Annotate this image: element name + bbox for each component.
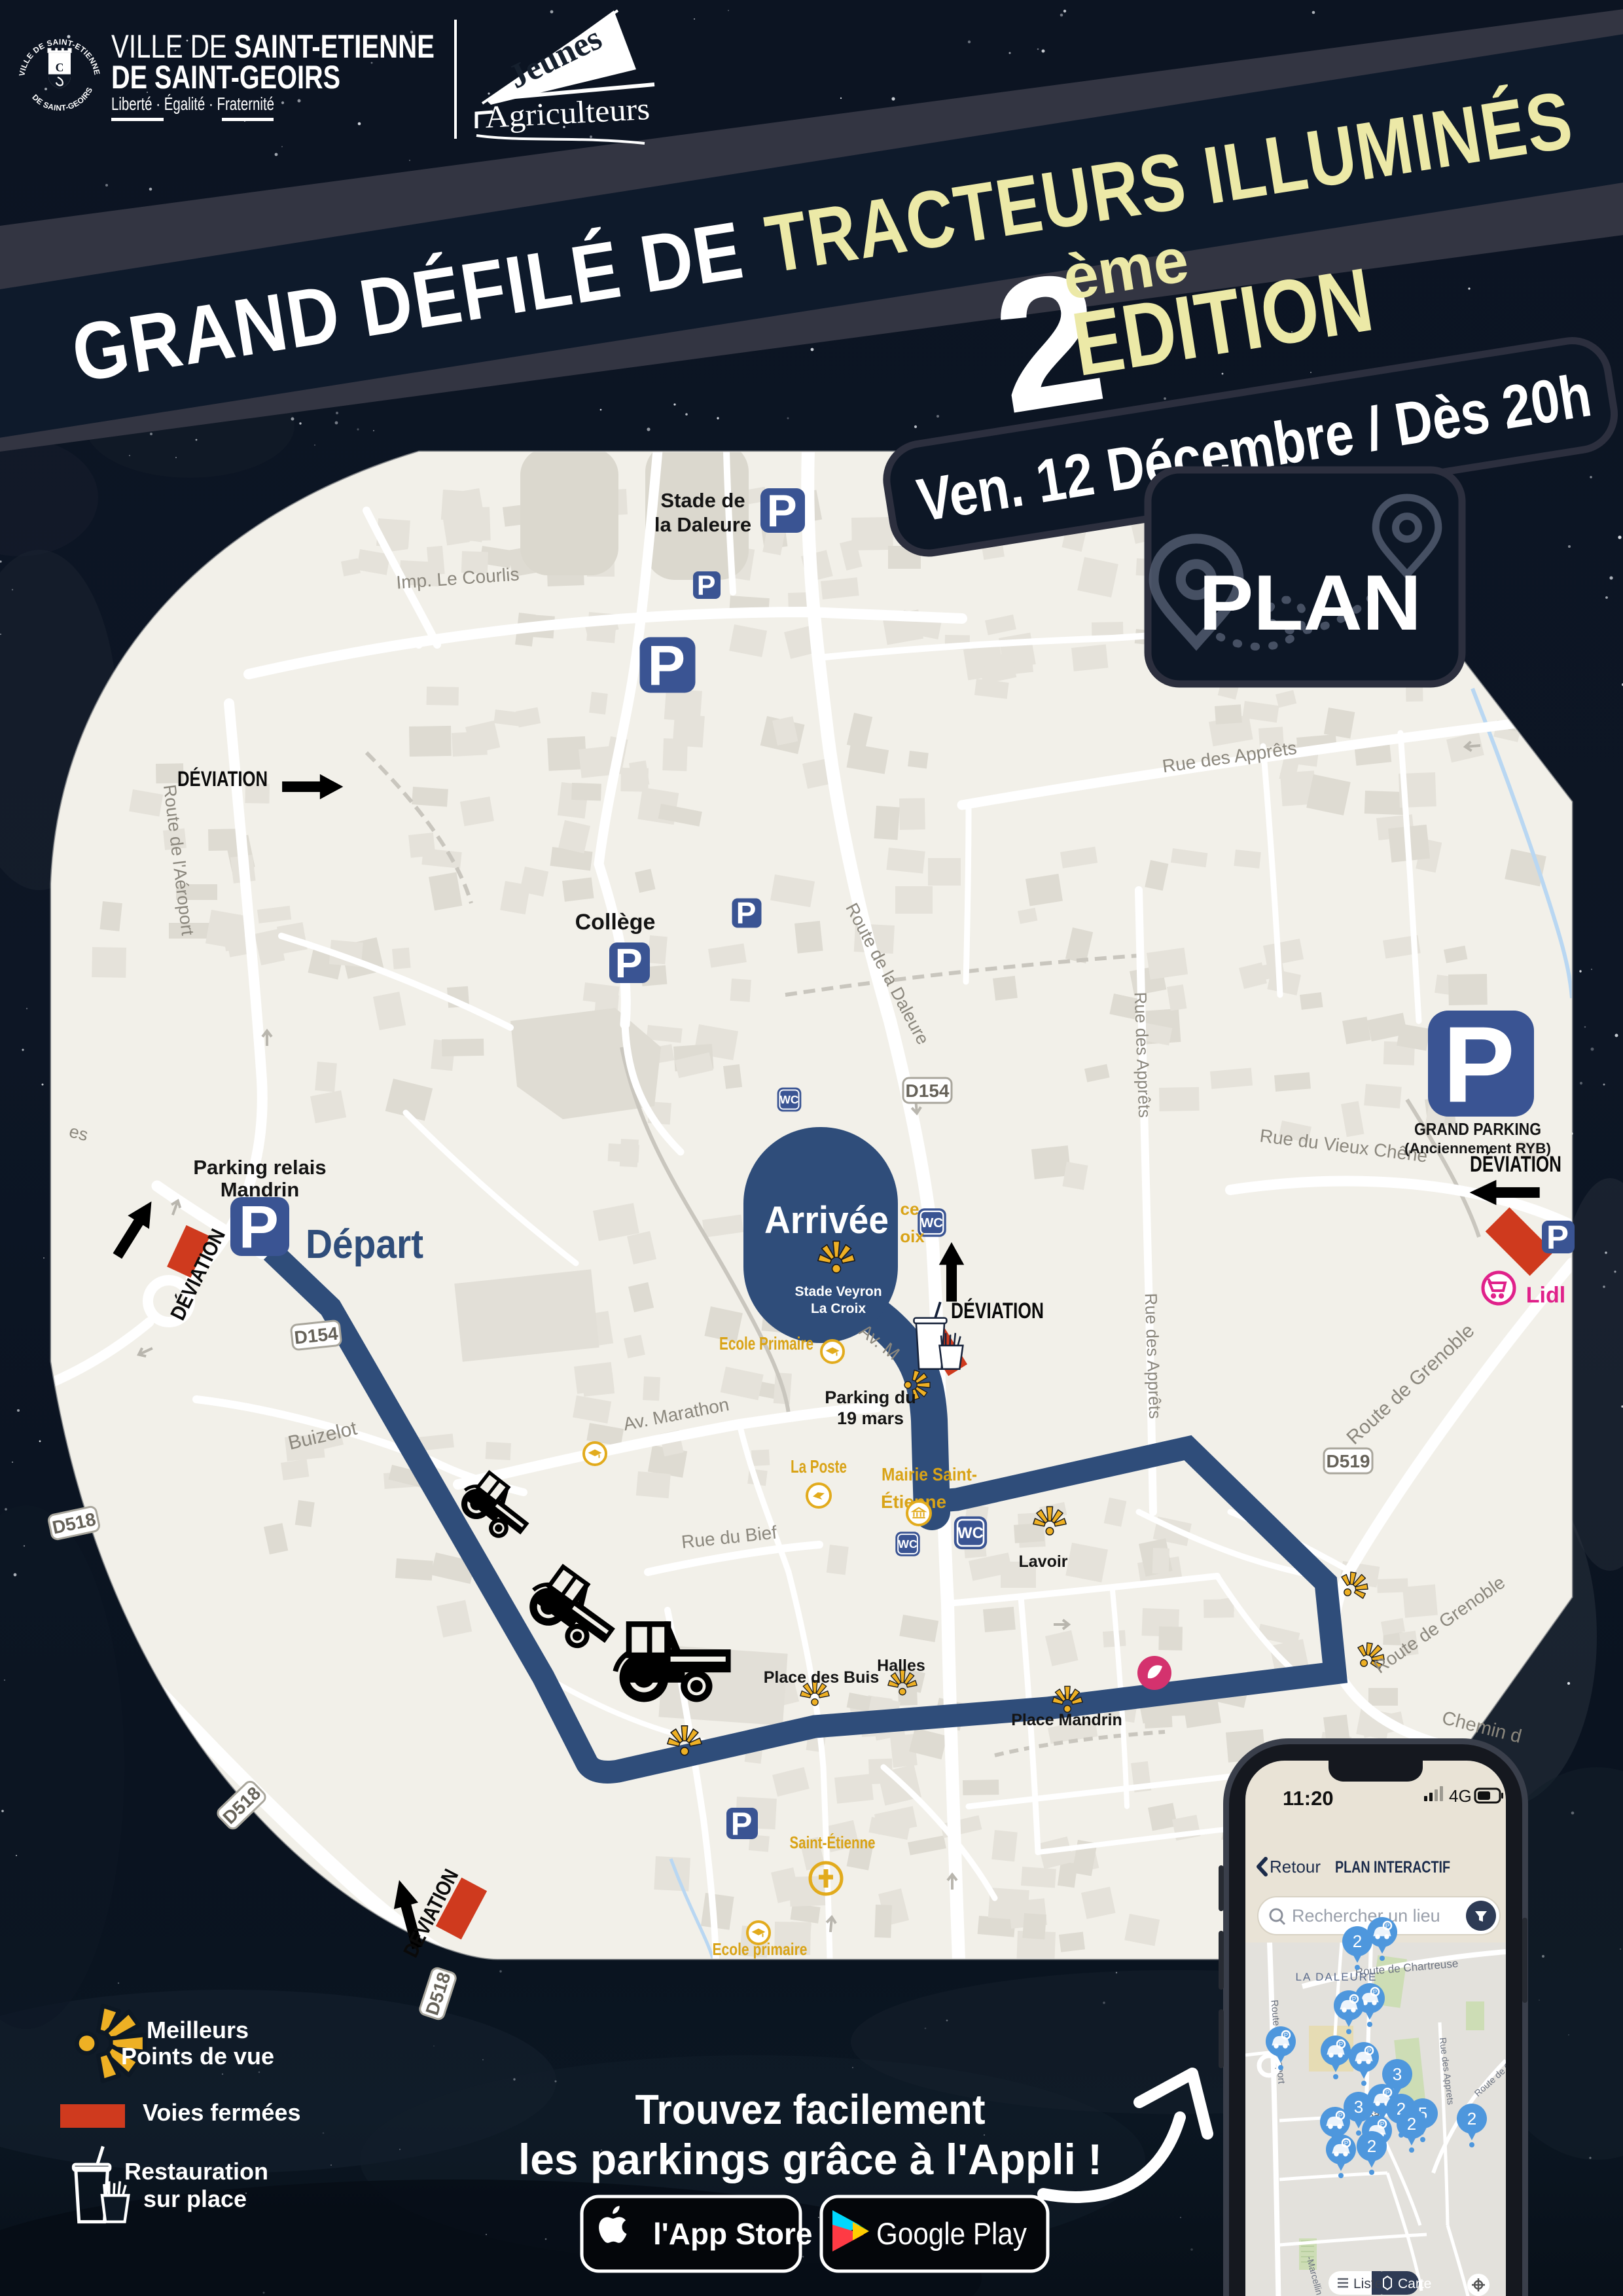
svg-text:P: P <box>1367 2048 1372 2055</box>
svg-text:Retour: Retour <box>1270 1857 1321 1876</box>
svg-text:PLAN INTERACTIF: PLAN INTERACTIF <box>1335 1858 1450 1876</box>
svg-text:P: P <box>1338 2113 1343 2120</box>
svg-text:2: 2 <box>1367 2136 1376 2156</box>
svg-text:3: 3 <box>1354 2097 1363 2117</box>
svg-text:2: 2 <box>1353 1931 1362 1951</box>
svg-text:Carte: Carte <box>1398 2276 1431 2291</box>
svg-text:Place des Buis: Place des Buis <box>764 1668 879 1687</box>
svg-text:DÉVIATION: DÉVIATION <box>951 1299 1044 1323</box>
svg-text:Stade de: Stade de <box>660 489 745 512</box>
svg-text:Points de vue: Points de vue <box>121 2043 274 2070</box>
svg-text:Collège: Collège <box>575 910 656 935</box>
svg-text:P: P <box>1380 2121 1385 2128</box>
svg-text:les parkings grâce à l'Appli !: les parkings grâce à l'Appli ! <box>518 2135 1102 2183</box>
svg-text:Saint-Étienne: Saint-Étienne <box>790 1833 876 1852</box>
svg-text:la Daleure: la Daleure <box>654 513 751 536</box>
svg-text:Meilleurs: Meilleurs <box>147 2017 249 2043</box>
svg-text:P: P <box>1339 2041 1344 2049</box>
svg-text:Liberté · Égalité · Fraternité: Liberté · Égalité · Fraternité <box>111 94 274 114</box>
svg-text:P: P <box>1344 2140 1349 2147</box>
svg-text:Départ: Départ <box>306 1222 423 1267</box>
svg-text:P: P <box>1385 2090 1390 2097</box>
svg-text:Google Play: Google Play <box>876 2216 1027 2251</box>
svg-text:2: 2 <box>1467 2109 1476 2128</box>
svg-text:4G: 4G <box>1449 1786 1472 1806</box>
svg-text:Mandrin: Mandrin <box>221 1178 300 1201</box>
svg-text:Lavoir: Lavoir <box>1018 1552 1067 1571</box>
svg-text:3: 3 <box>1393 2064 1402 2084</box>
svg-text:ce: ce <box>901 1199 919 1219</box>
svg-text:La Croix: La Croix <box>811 1301 866 1316</box>
svg-text:DE SAINT-GEOIRS: DE SAINT-GEOIRS <box>111 59 340 96</box>
svg-text:19 mars: 19 mars <box>837 1408 904 1428</box>
svg-text:PLAN: PLAN <box>1199 559 1421 647</box>
svg-text:LA DALEURE: LA DALEURE <box>1296 1971 1378 1983</box>
svg-text:11:20: 11:20 <box>1283 1787 1334 1810</box>
svg-text:Rechercher un lieu: Rechercher un lieu <box>1292 1906 1440 1926</box>
svg-text:Restauration: Restauration <box>124 2158 268 2185</box>
svg-text:GRAND PARKING: GRAND PARKING <box>1414 1119 1541 1139</box>
svg-text:P: P <box>1385 1923 1390 1930</box>
svg-text:2: 2 <box>1407 2114 1416 2134</box>
svg-text:oix: oix <box>900 1227 925 1246</box>
svg-text:sur place: sur place <box>143 2185 247 2212</box>
svg-text:l'App Store: l'App Store <box>653 2217 813 2251</box>
svg-text:Trouvez facilement: Trouvez facilement <box>635 2086 986 2133</box>
svg-text:Lidl: Lidl <box>1526 1283 1565 1308</box>
svg-text:Parking du: Parking du <box>825 1388 916 1407</box>
svg-text:D519: D519 <box>1327 1451 1370 1471</box>
svg-text:Arrivée: Arrivée <box>764 1199 889 1242</box>
svg-text:(Anciennement RYB): (Anciennement RYB) <box>1404 1140 1551 1157</box>
svg-text:P: P <box>1373 1989 1378 1996</box>
svg-text:La Poste: La Poste <box>791 1456 847 1477</box>
svg-text:Mairie Saint-: Mairie Saint- <box>882 1464 977 1484</box>
svg-text:Stade Veyron: Stade Veyron <box>794 1284 882 1299</box>
svg-text:D154: D154 <box>906 1081 950 1101</box>
svg-text:P: P <box>1352 1996 1357 2003</box>
svg-text:Parking relais: Parking relais <box>193 1156 326 1179</box>
svg-text:Voies fermées: Voies fermées <box>143 2099 300 2126</box>
svg-text:Halles: Halles <box>877 1657 925 1675</box>
svg-text:DÉVIATION: DÉVIATION <box>177 767 268 791</box>
svg-text:Place Mandrin: Place Mandrin <box>1011 1711 1122 1729</box>
svg-text:Liste: Liste <box>1353 2276 1382 2291</box>
svg-text:Ecole Primaire: Ecole Primaire <box>719 1333 813 1354</box>
svg-text:P: P <box>1284 2032 1289 2039</box>
svg-text:C: C <box>56 61 64 74</box>
